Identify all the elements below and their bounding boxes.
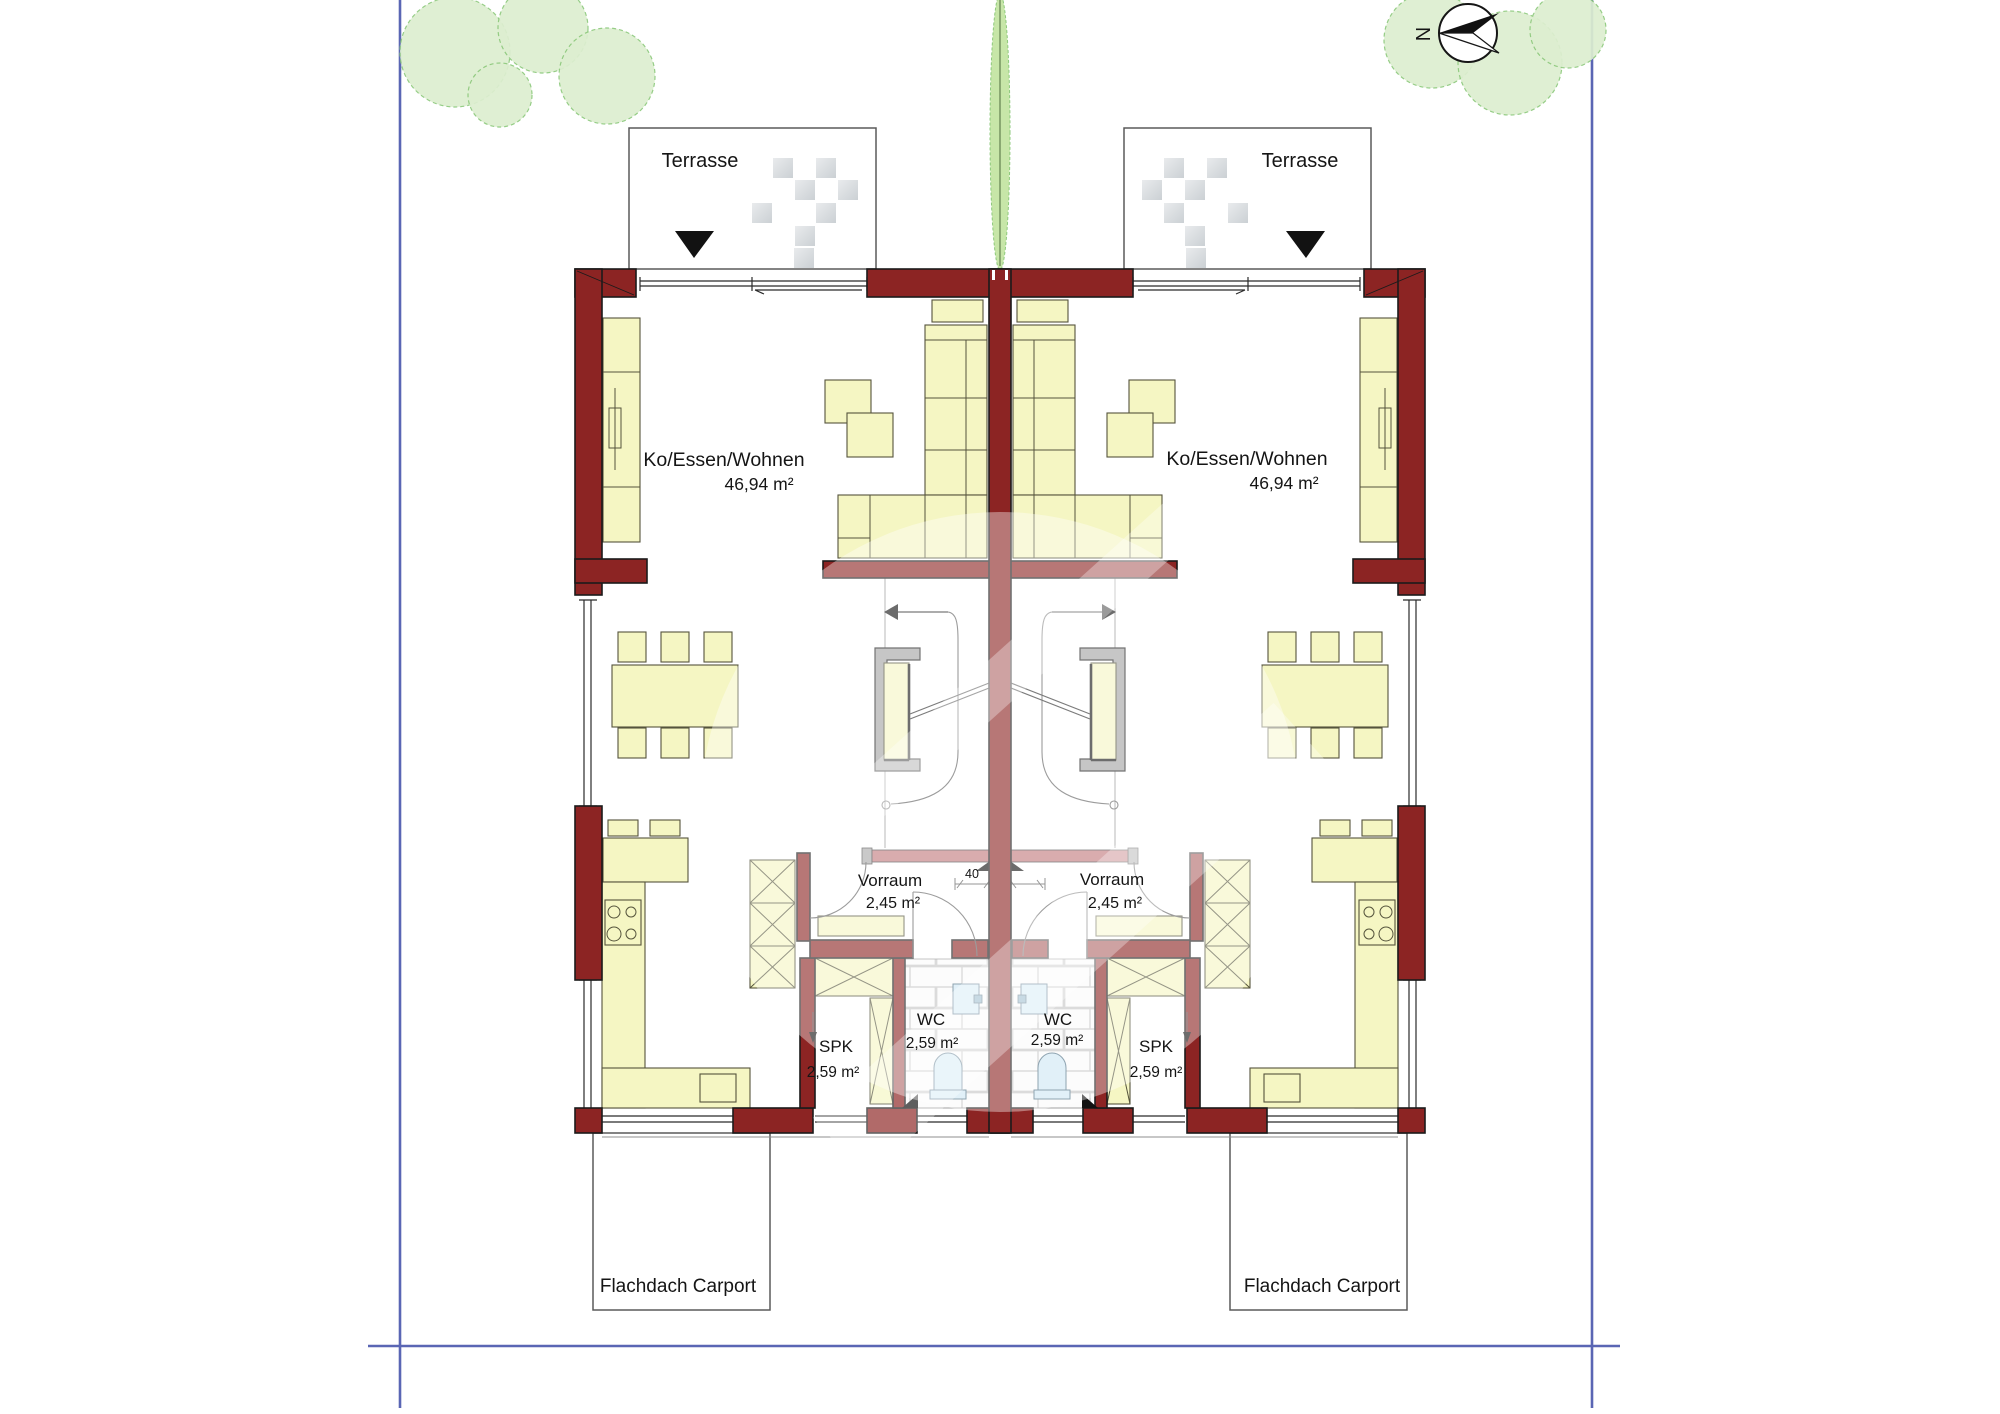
room-label-left-vorraum: Vorraum [858,871,922,890]
room-label-right-wc: WC [1044,1010,1072,1029]
party-wall-notch [1005,270,1008,280]
compass-north-label: N [1413,27,1435,41]
room-label-left-wc: WC [917,1010,945,1029]
party-wall-notch [992,270,995,280]
room-area-left-wc: 2,59 m² [906,1035,959,1052]
room-label-left-spk: SPK [819,1037,854,1056]
watermark [700,459,1327,1178]
floorplan-page: N Te [0,0,2000,1414]
room-label-right-vorraum: Vorraum [1080,870,1144,889]
dimension-party-wall: 40 [965,867,979,881]
carport-right-label: Flachdach Carport [1244,1276,1401,1297]
room-area-left-living: 46,94 m² [724,474,793,494]
room-area-left-vorraum: 2,45 m² [866,895,921,912]
terrace-left-label: Terrasse [662,150,739,172]
terrace-right-label: Terrasse [1262,150,1339,172]
room-area-right-living: 46,94 m² [1249,473,1318,493]
room-area-right-wc: 2,59 m² [1031,1032,1084,1049]
room-label-right-living: Ko/Essen/Wohnen [1166,448,1327,470]
tree-icon [559,28,655,124]
room-label-right-spk: SPK [1139,1037,1174,1056]
room-area-right-vorraum: 2,45 m² [1088,895,1143,912]
tree-icon [468,63,532,127]
room-area-right-spk: 2,59 m² [1130,1064,1183,1081]
room-label-left-living: Ko/Essen/Wohnen [643,449,804,471]
room-area-left-spk: 2,59 m² [807,1064,860,1081]
floor-plan-canvas: N Te [0,0,2000,1414]
carport-left-label: Flachdach Carport [600,1276,757,1297]
